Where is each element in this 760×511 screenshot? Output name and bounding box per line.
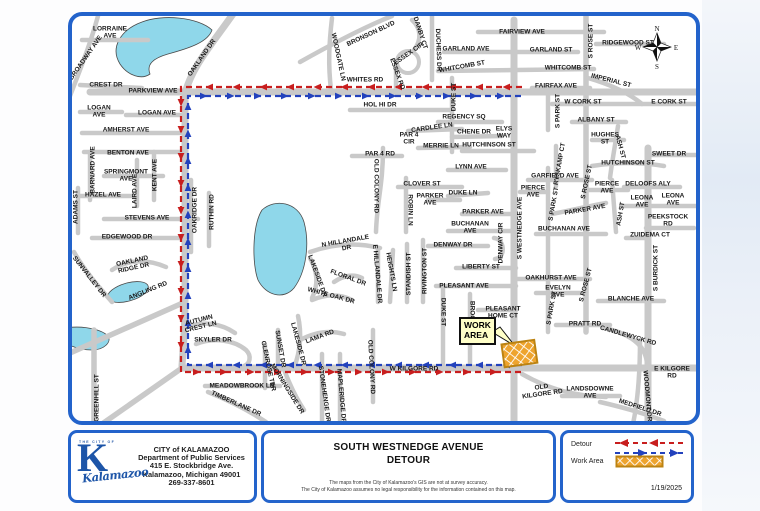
legend-work-area-swatch — [615, 455, 669, 469]
detour-map-page: N E S W — [0, 0, 760, 511]
legend-box: Detour Work Area 1/19/2025 — [560, 430, 694, 503]
map-date: 1/19/2025 — [651, 485, 682, 492]
work-area-hatch — [501, 340, 537, 367]
legend-detour-label: Detour — [571, 441, 592, 448]
agency-phone: 269-337-8601 — [133, 479, 250, 487]
city-of-kalamazoo-logo-icon: THE CITY OF K Kalamazoo — [75, 436, 133, 498]
map-canvas: N E S W — [68, 12, 700, 425]
agency-info-box: THE CITY OF K Kalamazoo CITY of KALAMAZO… — [68, 430, 257, 503]
work-area-layer — [68, 12, 700, 425]
legend-work-area-label: Work Area — [571, 458, 604, 465]
map-title-line2: DETOUR — [264, 455, 553, 468]
title-box: SOUTH WESTNEDGE AVENUE DETOUR The maps f… — [261, 430, 556, 503]
disclaimer-line2: The City of Kalamazoo assumes no legal r… — [264, 487, 553, 494]
map-title-line1: SOUTH WESTNEDGE AVENUE — [264, 442, 553, 455]
work-area-callout: WORK AREA — [459, 317, 496, 345]
